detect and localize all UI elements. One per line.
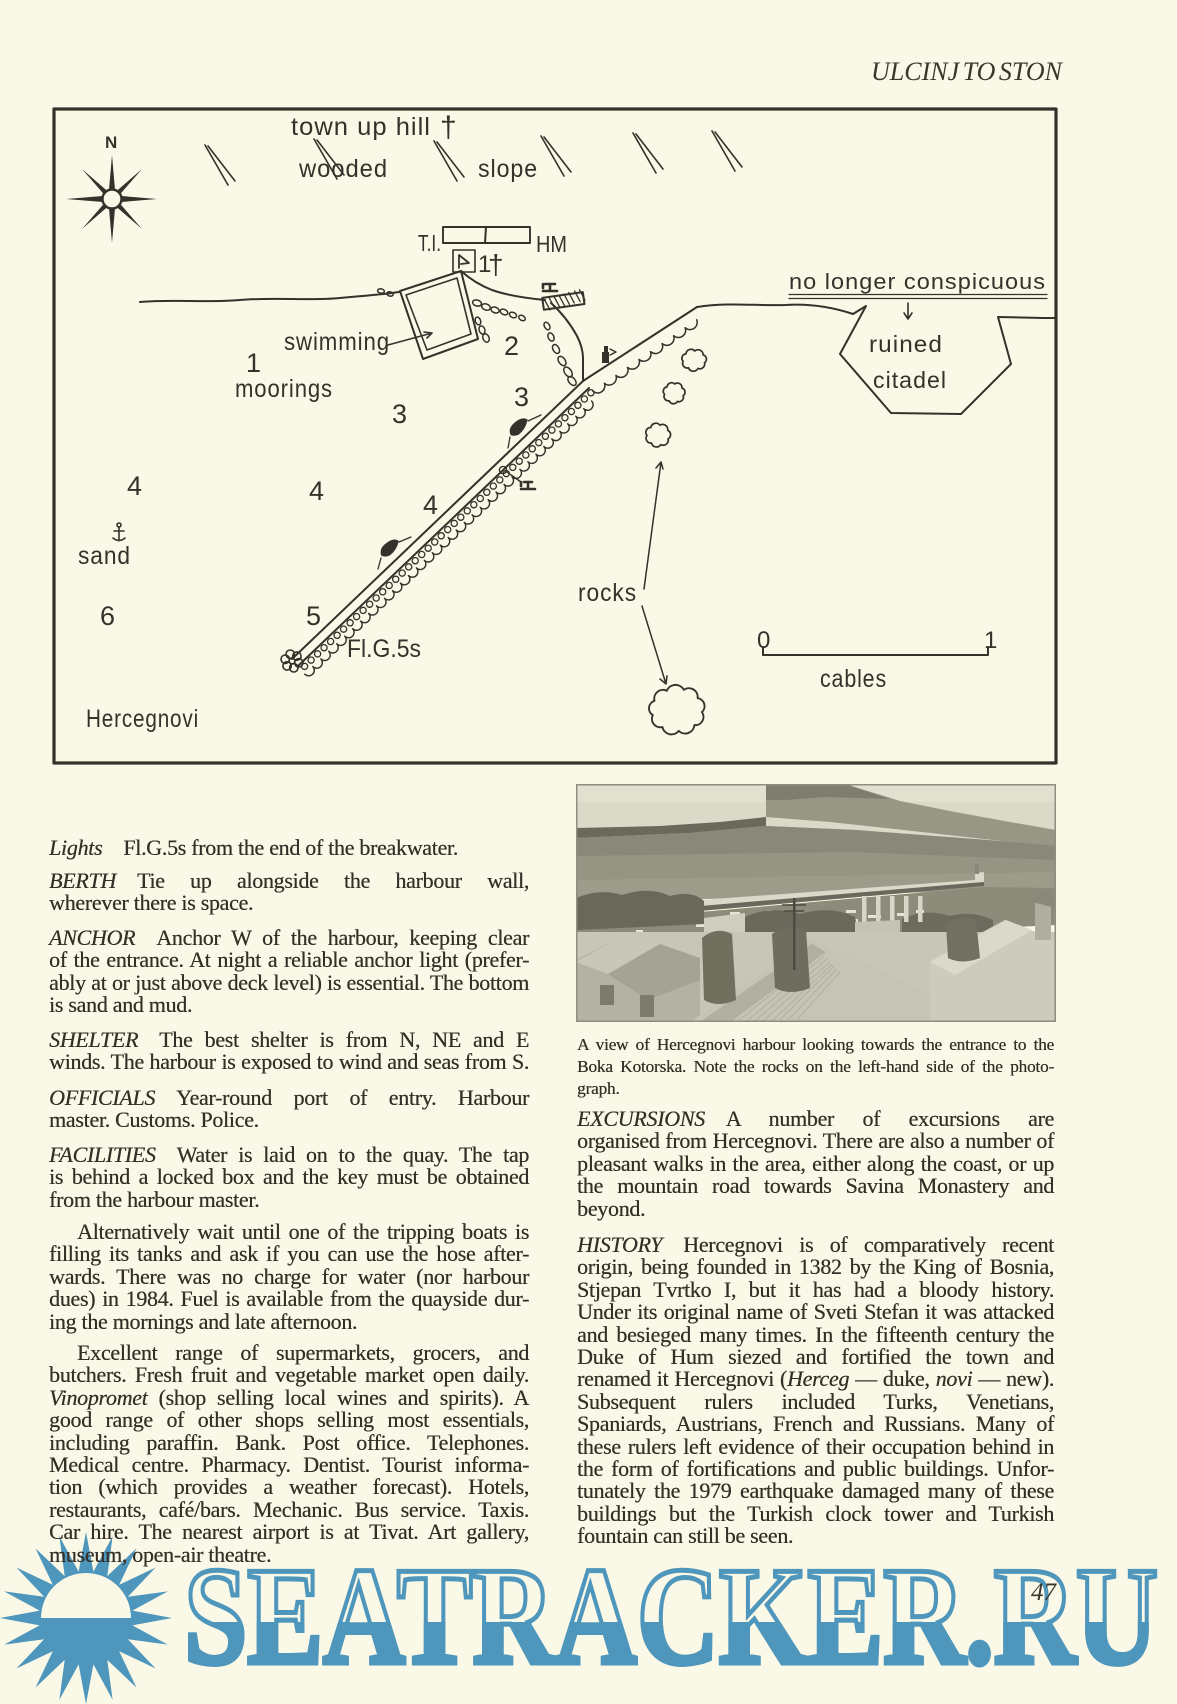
svg-text:N: N — [105, 133, 117, 152]
svg-text:ruined: ruined — [869, 331, 943, 357]
svg-text:moorings: moorings — [235, 375, 333, 403]
svg-text:town up hill: town up hill — [291, 113, 431, 141]
svg-text:4: 4 — [423, 490, 438, 520]
svg-text:5: 5 — [306, 601, 321, 631]
svg-text:cables: cables — [820, 665, 887, 693]
svg-text:sand: sand — [78, 542, 131, 570]
svg-text:0: 0 — [757, 627, 770, 654]
svg-text:1: 1 — [246, 348, 261, 378]
svg-text:†: † — [488, 249, 504, 280]
svg-text:swimming: swimming — [284, 328, 390, 356]
svg-text:citadel: citadel — [873, 367, 947, 393]
svg-text:HM: HM — [536, 231, 567, 257]
svg-text:Fl.G.5s: Fl.G.5s — [347, 635, 421, 663]
svg-text:4: 4 — [127, 471, 142, 501]
svg-text:3: 3 — [392, 399, 407, 429]
svg-text:3: 3 — [514, 382, 529, 412]
svg-text:4: 4 — [309, 476, 324, 506]
svg-text:wooded: wooded — [298, 155, 388, 183]
svg-text:Hercegnovi: Hercegnovi — [86, 705, 199, 733]
svg-text:rocks: rocks — [578, 579, 637, 607]
svg-text:no longer conspicuous: no longer conspicuous — [789, 269, 1046, 294]
svg-text:6: 6 — [100, 601, 115, 631]
svg-text:†: † — [440, 111, 457, 144]
svg-text:slope: slope — [478, 155, 538, 183]
svg-text:2: 2 — [504, 331, 519, 361]
svg-text:1: 1 — [984, 627, 997, 654]
svg-text:T.I.: T.I. — [418, 230, 441, 256]
